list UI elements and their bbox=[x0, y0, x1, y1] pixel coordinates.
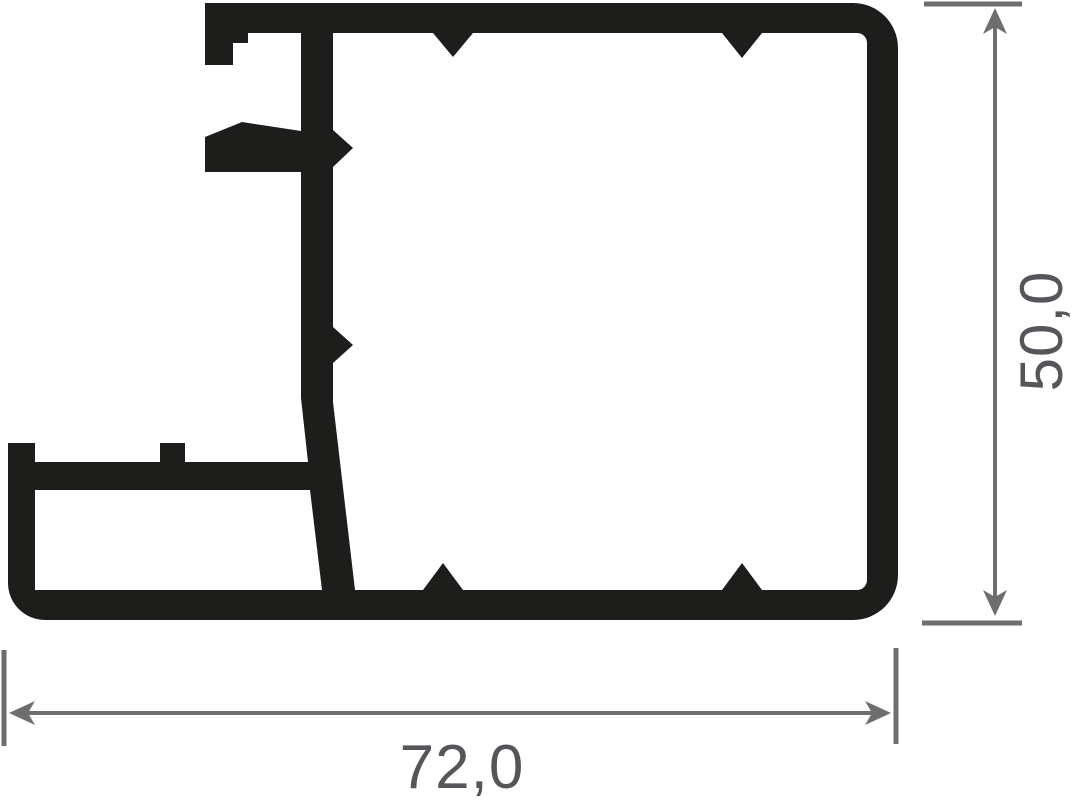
height-dimension: 50,0 bbox=[922, 4, 1075, 623]
width-dimension: 72,0 bbox=[4, 648, 896, 800]
profile-cross-section-outline bbox=[8, 3, 898, 620]
technical-drawing-canvas: 50,0 72,0 bbox=[0, 0, 1075, 800]
height-dimension-label: 50,0 bbox=[1008, 271, 1075, 392]
technical-drawing: 50,0 72,0 bbox=[0, 0, 1075, 800]
width-dimension-label: 72,0 bbox=[400, 733, 525, 800]
